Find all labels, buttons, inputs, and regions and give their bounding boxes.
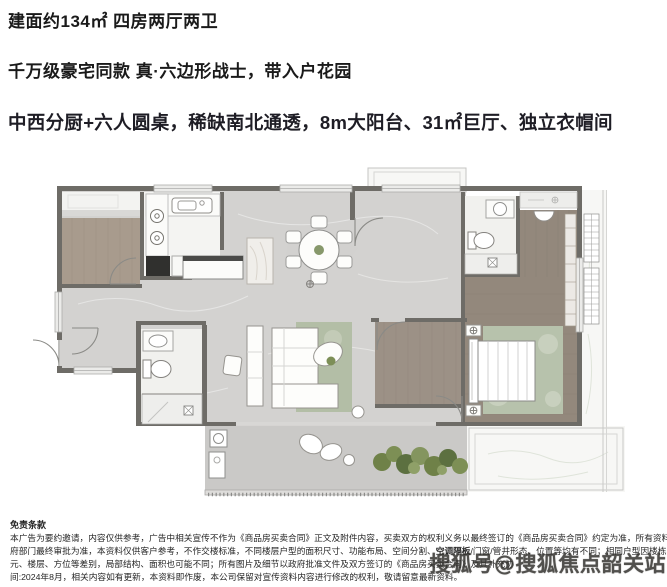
basin-icon: [149, 335, 167, 347]
study-room: [62, 218, 140, 284]
promo-page: 建面约134㎡ 四房两厅两卫 千万级豪宅同款 真·六边形战士，带入户花园 中西分…: [0, 0, 667, 587]
bed-icon: [469, 339, 535, 403]
washer-icon: [210, 430, 227, 447]
toilet-icon: [468, 232, 494, 249]
headline-area: 建面约134㎡ 四房两厅两卫: [8, 7, 218, 32]
tv-console: [247, 326, 263, 406]
marble-island: [247, 238, 273, 284]
wardrobe: [565, 214, 576, 326]
kitchen-sink-icon: [172, 198, 212, 213]
floor-plan-image: [28, 154, 650, 518]
floor-lamp-icon: [352, 406, 364, 418]
disclaimer-title: 免责条款: [10, 519, 665, 532]
drying-rack-icon: [584, 214, 599, 324]
disclaimer-line: 本广告为要约邀请，内容仅供参考，广告中相关宣传不作为《商品房买卖合同》正文及附件…: [10, 532, 665, 545]
basin-icon: [494, 203, 507, 216]
balcony-cabinet: [209, 452, 225, 478]
sohu-watermark: 搜狐号@搜狐焦点韶关站: [430, 548, 667, 578]
side-chair-icon: [223, 355, 242, 376]
terrace-bottom: [467, 426, 625, 492]
toilet-icon: [143, 360, 171, 378]
headline-features: 中西分厨+六人圆桌，稀缺南北通透，8m大阳台、31㎡巨厅、独立衣帽间: [8, 109, 613, 135]
headline-selling-point: 千万级豪宅同款 真·六边形战士，带入户花园: [8, 57, 352, 82]
